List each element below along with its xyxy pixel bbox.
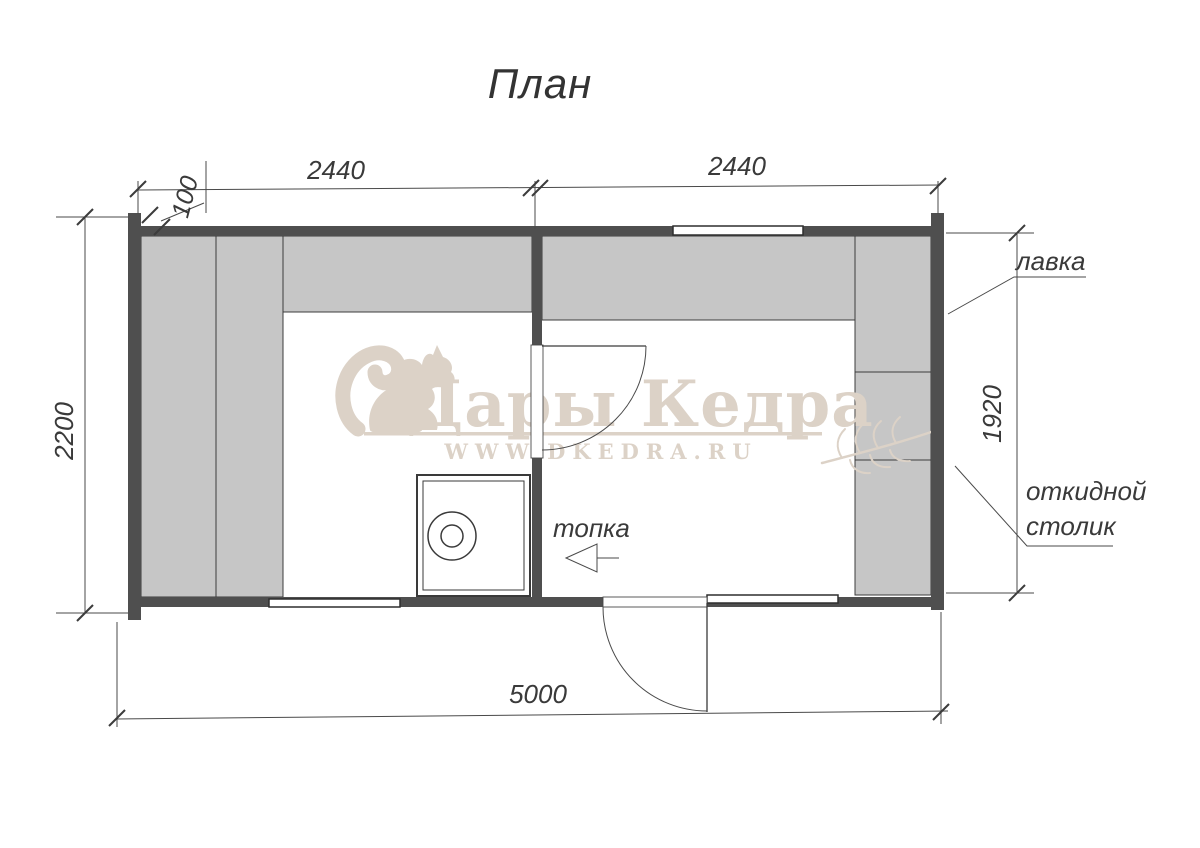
dim-2200-label: 2200 [49, 402, 79, 461]
watermark-url: WWW.DKEDRA.RU [443, 439, 757, 464]
bench-left-top-band [283, 236, 532, 312]
folding-table-label-2: столик [1026, 511, 1117, 541]
firebox-arrow-icon [566, 544, 597, 572]
dim-5000-label: 5000 [509, 679, 567, 709]
floor-plan-drawing: Дары Кедра WWW.DKEDRA.RU [0, 0, 1200, 848]
bench-right-top-band [542, 236, 855, 320]
window-top [673, 226, 803, 235]
dim-2440-left-label: 2440 [306, 155, 365, 185]
window-bottom-right [707, 595, 838, 603]
window-bottom-left [269, 599, 400, 607]
annotation-firebox: топка [553, 513, 630, 572]
bench-right-column-bottom [855, 460, 931, 595]
wall-right [931, 213, 944, 610]
wall-partition-upper [532, 236, 542, 346]
door-partition-opening [531, 345, 543, 458]
watermark: Дары Кедра WWW.DKEDRA.RU [343, 345, 940, 473]
dim-right: 1920 [946, 225, 1034, 601]
bench-left-strip-1 [141, 236, 216, 597]
bench-left-strip-2 [216, 236, 283, 597]
tick [142, 207, 158, 223]
dim-bottom-line [117, 711, 948, 719]
watermark-brand: Дары Кедра [406, 367, 873, 442]
annotation-folding-table: откидной столик [955, 466, 1146, 546]
stove-burner-inner [441, 525, 463, 547]
floor-plan-page: Дары Кедра WWW.DKEDRA.RU [0, 0, 1200, 848]
door-entry-swing-arc [603, 607, 707, 711]
dim-top: 100 2440 2440 [130, 151, 946, 235]
bench-right-column-top [855, 236, 931, 372]
dim-1920-label: 1920 [977, 385, 1007, 443]
bench-label: лавка [1014, 246, 1085, 276]
page-title: План [488, 60, 593, 107]
dim-2440-right-label: 2440 [707, 151, 766, 181]
dim-bottom: 5000 [109, 612, 949, 727]
dim-100-label: 100 [166, 173, 204, 221]
dim-left: 2200 [49, 209, 128, 621]
wall-left [128, 213, 141, 620]
door-entry [603, 597, 707, 712]
stove [417, 475, 530, 596]
folding-table-label-1: откидной [1026, 476, 1146, 506]
firebox-label: топка [553, 513, 630, 543]
wall-partition-lower [532, 456, 542, 597]
door-entry-opening [603, 597, 707, 607]
wall-top [128, 226, 944, 236]
